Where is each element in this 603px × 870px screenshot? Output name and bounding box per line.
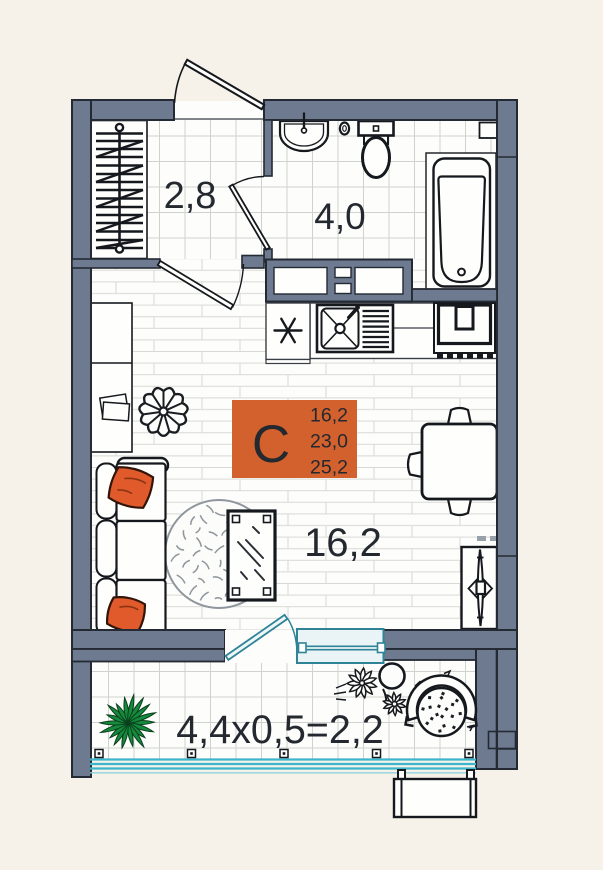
svg-text:16,2: 16,2 <box>304 521 382 565</box>
svg-text:C: C <box>252 415 290 474</box>
svg-text:16,2: 16,2 <box>310 405 348 427</box>
svg-text:2,8: 2,8 <box>164 175 217 217</box>
svg-text:23,0: 23,0 <box>310 431 348 453</box>
svg-text:4,4x0,5=2,2: 4,4x0,5=2,2 <box>176 708 384 752</box>
svg-text:4,0: 4,0 <box>314 196 365 237</box>
svg-text:25,2: 25,2 <box>310 457 348 479</box>
